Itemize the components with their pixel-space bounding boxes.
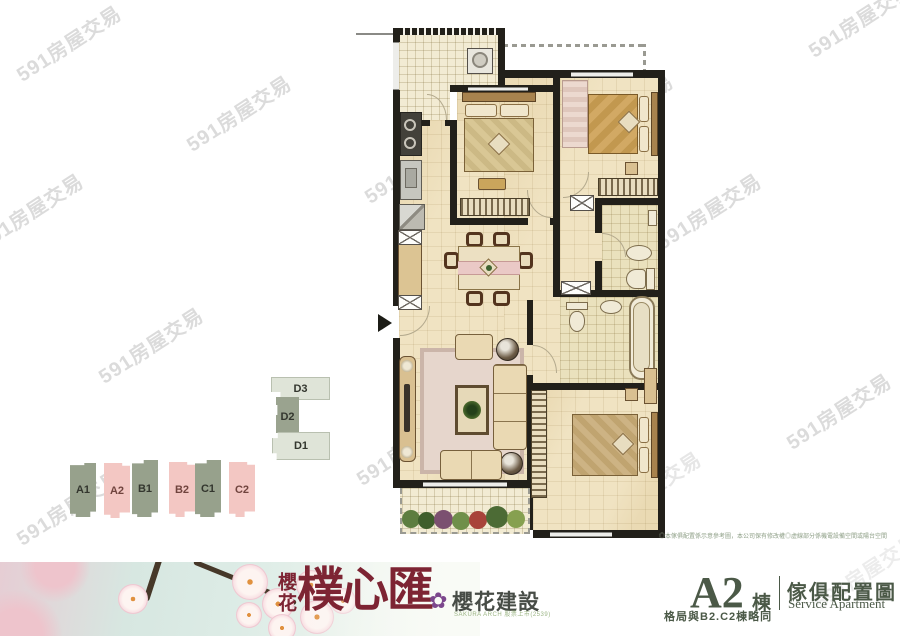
sofa-icon	[493, 364, 527, 450]
wall-bath2-bottom	[533, 383, 658, 390]
shrub-icon	[452, 512, 470, 530]
shrub-icon	[418, 512, 435, 529]
burner-icon	[404, 137, 416, 149]
toilet-icon	[569, 311, 585, 332]
window	[423, 482, 507, 487]
cabinet-x-end	[398, 230, 422, 245]
toilet-tank-icon	[646, 268, 655, 290]
site-block-c2: C2	[229, 462, 255, 517]
wardrobe-icon	[531, 390, 547, 498]
leader-line	[356, 33, 396, 35]
wall-bedroom-divider	[553, 78, 560, 225]
shrub-icon	[486, 506, 508, 528]
pillow-icon	[639, 126, 649, 152]
block-label: A2	[110, 485, 124, 497]
block-label: B1	[138, 483, 152, 495]
sink-icon	[600, 300, 622, 314]
armchair-icon	[455, 334, 493, 360]
pillow-icon	[465, 104, 497, 117]
watermark: 591房屋交易	[650, 166, 767, 256]
nightstand-icon	[625, 162, 638, 175]
plan-type-en-label: Service Apartment	[788, 596, 885, 612]
burner-icon	[404, 119, 416, 131]
floor-plan	[393, 28, 665, 560]
watermark: 591房屋交易	[780, 366, 897, 456]
sakura-flower-icon: ✿	[429, 590, 447, 612]
pillow-icon	[500, 104, 529, 117]
wall-kitchen-divider	[450, 120, 457, 225]
site-block-a2: A2	[104, 463, 130, 518]
dining-chair-icon	[493, 232, 510, 247]
wall	[498, 28, 505, 90]
washer-drum-icon	[472, 52, 488, 68]
toilet-icon	[626, 269, 646, 289]
shaft-x-box	[561, 281, 591, 295]
closet-icon	[598, 178, 658, 196]
wall	[550, 218, 555, 225]
site-block-c1: C1	[195, 460, 221, 517]
site-block-b1: B1	[132, 460, 158, 517]
block-label: D1	[294, 440, 308, 452]
window	[468, 87, 528, 91]
site-block-a1: A1	[70, 463, 96, 517]
dresser-icon	[644, 368, 657, 404]
wall-bath1	[595, 205, 602, 233]
site-block-d1: D1	[272, 432, 330, 460]
pillow-icon	[639, 417, 649, 443]
block-label: A1	[76, 484, 90, 496]
site-block-d3: D3	[271, 377, 330, 400]
shrub-icon	[469, 511, 487, 529]
banner: 櫻花 樸心匯 ✿ 櫻花建設 SAKURA ARCH 股票上市(2539) A2 …	[0, 562, 900, 636]
disclaimer-text: ◎本傢俱配置係示意參考圖，本公司保有修改權◎虛線部分係機電設備空間或陽台空間	[659, 531, 897, 540]
layout-note: 格局與B2.C2棟略同	[664, 608, 772, 624]
plant-icon	[463, 401, 481, 419]
window	[550, 532, 612, 537]
bath-shelf-icon	[648, 210, 657, 226]
block-label: B2	[175, 484, 189, 496]
side-table-icon	[500, 452, 523, 475]
blossom-icon	[118, 584, 148, 614]
console-knob	[401, 446, 413, 458]
shaft-x-box	[570, 195, 594, 211]
bench-icon	[478, 178, 506, 190]
project-name: 樸心匯	[297, 568, 432, 615]
counter-icon	[399, 204, 425, 230]
site-block-d2: D2	[276, 397, 299, 437]
window	[393, 42, 399, 90]
dining-chair-icon	[466, 232, 483, 247]
watermark: 591房屋交易	[92, 300, 209, 390]
bathtub-inner	[633, 302, 650, 372]
blossom-icon	[268, 614, 296, 636]
entrance-arrow-icon	[378, 314, 392, 332]
blossom-icon	[232, 564, 268, 600]
watermark: 591房屋交易	[180, 68, 297, 158]
divider	[779, 576, 780, 610]
wall-bedroom1-bottom	[457, 218, 528, 225]
balcony-rail	[398, 28, 500, 35]
shrub-icon	[507, 510, 525, 528]
wall-right	[658, 70, 665, 538]
table-plant-icon	[486, 265, 492, 271]
block-label: C2	[235, 484, 249, 496]
dashed-boundary-h	[503, 44, 645, 47]
pillow-icon	[639, 447, 649, 473]
sink-basin-icon	[405, 168, 417, 188]
developer-subtext: SAKURA ARCH 股票上市(2539)	[454, 609, 551, 618]
blossom-icon	[236, 602, 262, 628]
side-table-icon	[496, 338, 519, 361]
tv-icon	[404, 384, 410, 432]
dining-chair-icon	[493, 291, 510, 306]
watermark: 591房屋交易	[0, 166, 89, 256]
block-label: C1	[201, 483, 215, 495]
console-knob	[401, 360, 413, 372]
page: 591房屋交易 591房屋交易 591房屋交易 591房屋交易 591房屋交易 …	[0, 0, 900, 636]
wall-corridor	[553, 225, 560, 290]
wall-bedroom2-bottom	[595, 198, 658, 205]
watermark: 591房屋交易	[802, 0, 900, 63]
cabinet-x-end	[398, 295, 422, 310]
loveseat-icon	[440, 450, 502, 480]
block-label: D2	[280, 411, 294, 423]
shrub-icon	[434, 510, 453, 529]
dining-chair-icon	[518, 252, 533, 269]
closet-icon	[460, 198, 530, 216]
site-block-b2: B2	[169, 462, 195, 517]
sink-icon	[626, 245, 652, 261]
bed-headboard-icon	[651, 412, 658, 478]
rug-icon	[562, 80, 588, 148]
dining-chair-icon	[466, 291, 483, 306]
pillow-icon	[639, 96, 649, 122]
dining-chair-icon	[444, 252, 459, 269]
bed-headboard-icon	[462, 92, 536, 102]
wall-bedroom3-left	[527, 300, 533, 345]
toilet-tank-icon	[566, 302, 588, 310]
nightstand-icon	[625, 388, 638, 401]
brand-vertical-text: 櫻花	[272, 572, 299, 614]
bed-headboard-icon	[651, 92, 658, 156]
watermark: 591房屋交易	[10, 0, 127, 87]
block-label: D3	[293, 383, 307, 395]
window	[571, 72, 633, 77]
